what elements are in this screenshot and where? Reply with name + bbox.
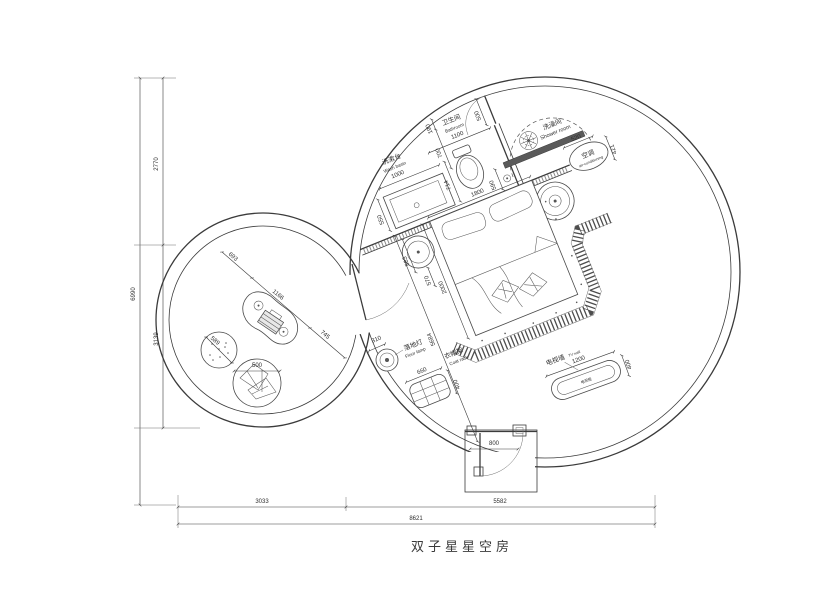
dim-left-total: 6990 [131,287,137,301]
dim-coatrack-w: 660 [416,367,428,377]
dim-bottom-seg1: 3033 [255,499,269,505]
tv-wall-label-zh: 电视墙 [545,352,567,367]
shower-head-icon [517,129,540,152]
dim-left-upper: 2770 [154,157,160,171]
dim-left-lower: 3139 [154,332,160,346]
dim-entry-door: 800 [489,441,500,447]
dim-coatrack-d: 400 [453,378,463,390]
dim-room-diag: 5684 [426,331,437,346]
lamp-leader [395,350,403,355]
passage-opening [341,272,375,335]
dim-chair: 500 [252,363,263,369]
dim-tv-depth: 400 [624,358,633,370]
dim-washbasin-depth: 550 [377,213,387,225]
toilet [448,143,488,193]
dim-bathroom-width: 1100 [451,130,466,141]
dim-washbasin-length: 1000 [391,169,406,180]
dim-table-b: 570 [424,274,434,286]
passage-door-swing [366,283,409,320]
tv-cabinet: 电视柜 1200 400 电视墙 TV wall [541,331,636,402]
floor-drain-icon [503,174,512,183]
kidney-desk [235,284,306,352]
dim-bed-length: 2000 [438,279,449,294]
dim-bath-door: 500 [474,109,484,121]
dim-bottom-total: 8621 [409,516,423,522]
dim-tv-length: 1200 [572,355,587,365]
door-frame-block [513,425,526,436]
dim-lamp: 310 [371,335,383,345]
floor-lamp [376,349,398,371]
left-dimension-chain: 2770 3139 6990 [131,78,200,505]
dim-bottom-seg2: 5582 [493,499,507,505]
dim-ac-d: 421 [609,143,619,155]
page-title: 双子星星空房 [411,539,513,554]
dim-190: 190 [425,122,435,134]
bathroom-door-leaf [485,96,496,124]
dim-bed-width: 1800 [470,188,485,199]
bottom-dimension-chain: 3033 5582 8621 [178,495,655,528]
floor-plan-canvas: 空调 air-conditioning [0,0,837,592]
dim-drain: 590 [489,179,499,191]
dim-pass: 745 [319,330,331,341]
